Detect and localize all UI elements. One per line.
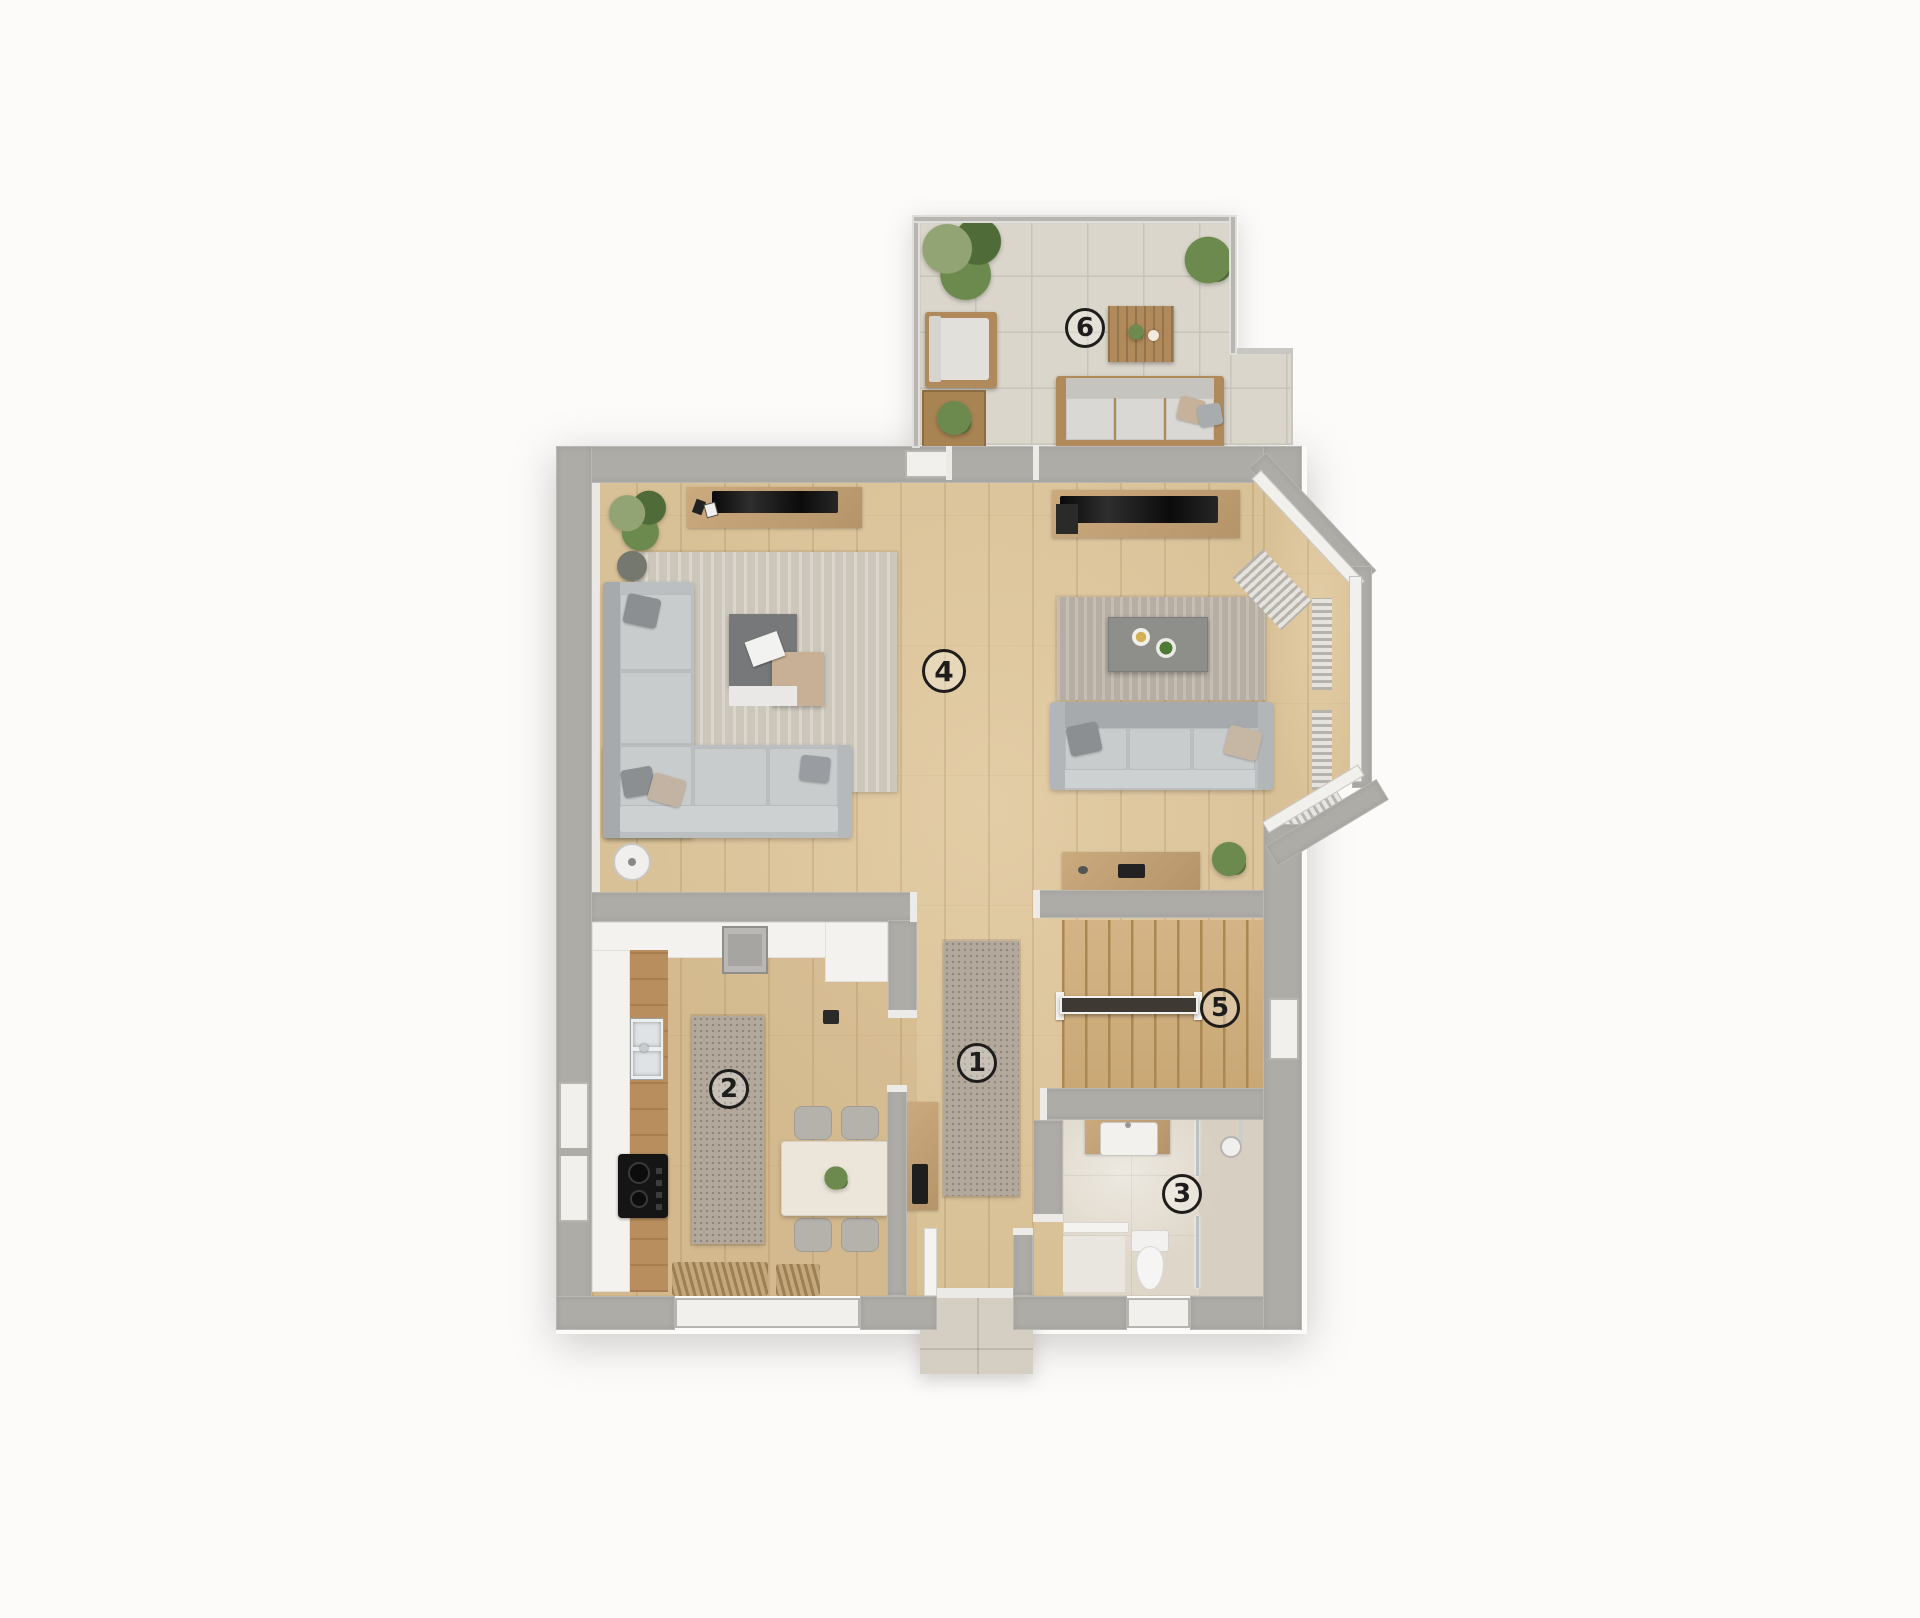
tv-right-icon (1060, 496, 1218, 523)
floor-plan-render: 1 2 3 4 5 6 (0, 0, 1920, 1618)
window-stairs-right (1269, 998, 1299, 1060)
shower-head-icon (1220, 1136, 1242, 1158)
porch-tile-seam-h (920, 1348, 1033, 1350)
dining-chair-2 (841, 1106, 879, 1140)
bay-curtain-right-lower-icon (1312, 710, 1332, 790)
speaker-icon (1056, 504, 1078, 534)
corner-sofa-front-band (620, 806, 838, 832)
shower-arm-icon (1239, 1120, 1243, 1142)
sink-basin-1 (633, 1022, 661, 1047)
wall-stairs-bottom (1040, 1088, 1267, 1120)
terrace-door-jamb-right (1033, 446, 1039, 480)
terrace-armchair-back (929, 316, 941, 382)
jamb-stub-bottom (888, 1010, 917, 1018)
terrace-armchair-cushion (937, 318, 989, 380)
bench-plant-icon (1124, 320, 1148, 344)
phone-icon (912, 1164, 928, 1204)
plate-icon (1132, 628, 1150, 646)
bay-corner-plant-icon (1202, 832, 1256, 886)
terrace-wall-right (1229, 215, 1237, 355)
keyboard-icon (1118, 864, 1145, 878)
kitchen-counter-left-wood (630, 950, 668, 1292)
dining-chair-4 (841, 1218, 879, 1252)
living-corner-plant-icon (604, 486, 670, 554)
jamb-bathroom-door (1033, 1214, 1063, 1222)
wall-kitchen-living (590, 892, 917, 922)
jamb-passage-right (1033, 890, 1040, 918)
jamb-hall-lower-top (887, 1085, 907, 1092)
outer-wall-bottom-c (1013, 1296, 1127, 1330)
kitchen-counter-left-white (592, 950, 630, 1292)
cooktop-knobs-icon (656, 1162, 662, 1210)
kitchen-tall-cabinet (825, 922, 888, 982)
hall-kitchen-door-leaf (924, 1228, 937, 1296)
bath-mat (1063, 1236, 1125, 1292)
dining-chair-3 (794, 1218, 832, 1252)
corner-sofa-seat-2 (620, 672, 692, 744)
faucet-icon (640, 1044, 648, 1052)
jamb-entry-stub-top (1013, 1228, 1033, 1235)
sink-basin-2 (633, 1051, 661, 1076)
bowl-icon (1156, 638, 1176, 658)
corner-sofa-back-left (603, 582, 620, 838)
woven-mat-small-icon (776, 1264, 820, 1296)
outer-wall-right-bottom (1263, 824, 1302, 1330)
porch-tile-seam-v (977, 1296, 979, 1374)
window-bathroom-bottom (1127, 1298, 1190, 1328)
robot-vacuum-center-icon (628, 858, 636, 866)
left-wall-baseboard (591, 478, 600, 892)
entry-threshold (937, 1288, 1013, 1298)
room-number-2: 2 (720, 1074, 738, 1104)
outer-wall-bottom-b (860, 1296, 937, 1330)
room-number-3: 3 (1173, 1179, 1191, 1209)
room-label-bathroom: 3 (1162, 1174, 1202, 1214)
room-label-living-room: 4 (922, 649, 966, 693)
outer-wall-bottom-a (556, 1296, 675, 1330)
sofa-right-front (1065, 770, 1255, 788)
sofa-right-seat-2 (1129, 728, 1191, 770)
planter-plant-icon (926, 392, 982, 444)
jamb-passage-left (910, 892, 917, 922)
bench-cup-icon (1148, 330, 1159, 341)
dining-chair-1 (794, 1106, 832, 1140)
terrace-plant-cluster-icon (915, 212, 1007, 304)
terrace-wall-left (912, 215, 920, 448)
room-number-4: 4 (934, 655, 953, 688)
wall-living-bottom-right (1033, 890, 1302, 918)
wall-bathroom-left (1033, 1120, 1063, 1222)
terrace-wall-top (912, 215, 1237, 223)
bay-curtain-right-upper-icon (1312, 598, 1332, 690)
terrace-extension-right-edge (1291, 348, 1293, 445)
wall-kitchen-hall-lower (887, 1085, 907, 1296)
kitchen-runner-rug (692, 1016, 764, 1244)
terrace-sofa-seat-1 (1066, 398, 1114, 440)
terrace-sofa-pillow-2-icon (1196, 402, 1223, 428)
sofa-right-arm-left (1050, 702, 1065, 790)
desk-item-icon (1078, 866, 1088, 874)
window-kitchen-left-mullion (559, 1148, 589, 1156)
kitchen-cabinet-handle-icon (823, 1010, 839, 1024)
corner-sofa-pillow-4-icon (799, 755, 832, 784)
burner-2-icon (630, 1190, 648, 1208)
shower-glass-lower-icon (1196, 1216, 1199, 1288)
shower-glass-upper-icon (1196, 1120, 1199, 1176)
burner-1-icon (628, 1162, 650, 1184)
room-number-5: 5 (1211, 993, 1229, 1023)
room-label-hallway: 1 (957, 1043, 997, 1083)
woven-mat-large-icon (672, 1262, 768, 1296)
bathroom-door-leaf (1063, 1222, 1129, 1233)
terrace-door-jamb-left (946, 446, 952, 480)
sofa-right-arm-right (1258, 702, 1273, 790)
room-number-6: 6 (1076, 313, 1094, 343)
tv-left-icon (712, 491, 838, 513)
corner-sofa-armrest-right (838, 745, 852, 838)
terrace-extension-floor (1230, 348, 1293, 445)
terrace-sofa-back (1066, 378, 1214, 398)
side-table-round (617, 551, 647, 581)
corner-sofa-seat-4 (694, 748, 767, 806)
wall-entry-stub (1013, 1228, 1033, 1296)
built-in-appliance-inner (728, 934, 762, 966)
room-number-1: 1 (968, 1048, 986, 1078)
coffee-table-left-shelf (729, 686, 797, 706)
handrail-bar (1060, 996, 1198, 1014)
window-kitchen-bottom (675, 1298, 860, 1328)
window-beside-terrace-door (905, 450, 952, 478)
wall-kitchen-hall-stub (888, 920, 917, 1017)
terrace-sofa-seat-2 (1116, 398, 1164, 440)
bay-window-frame-right (1349, 576, 1362, 782)
room-label-kitchen: 2 (709, 1069, 749, 1109)
jamb-stairs-left (1040, 1088, 1047, 1120)
bathroom-faucet-icon (1125, 1122, 1131, 1128)
terrace-extension-edge (1237, 348, 1293, 354)
room-label-terrace: 6 (1065, 308, 1105, 348)
room-label-staircase: 5 (1200, 988, 1240, 1028)
table-centerpiece-plant-icon (817, 1160, 855, 1196)
